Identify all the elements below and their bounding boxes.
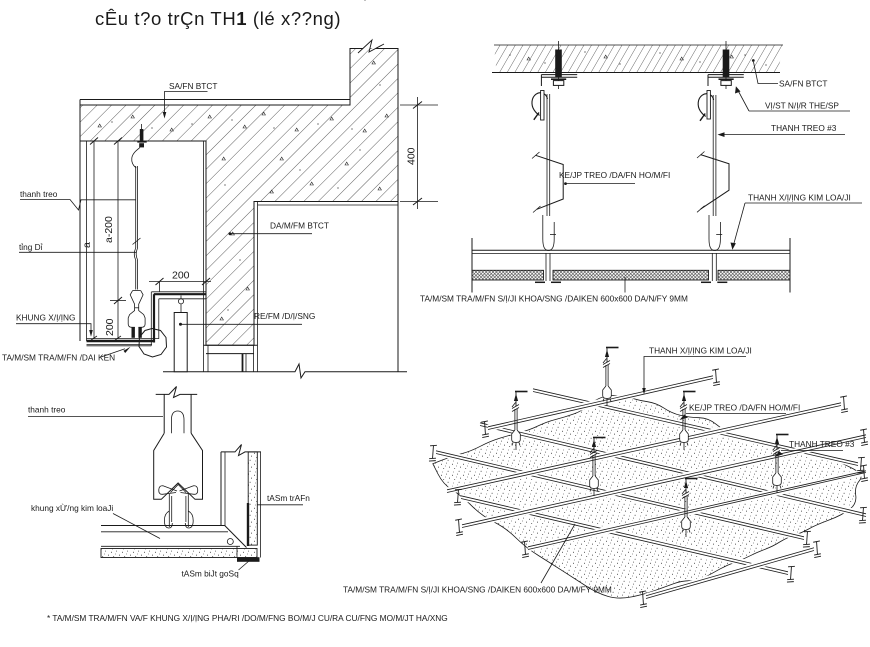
svg-text:cÊu t?o trÇn TH1 (lé x??ng): cÊu t?o trÇn TH1 (lé x??ng) — [95, 8, 341, 29]
svg-text:thanh treo: thanh treo — [28, 405, 66, 415]
svg-text:KE/JP TREO /DA/FN HO/M/FI: KE/JP TREO /DA/FN HO/M/FI — [559, 170, 670, 180]
svg-text:a: a — [81, 242, 93, 248]
svg-text:KHUNG X/Ị/ỊNG: KHUNG X/Ị/ỊNG — [16, 313, 75, 323]
svg-text:THANH TREO #3: THANH TREO #3 — [789, 439, 855, 449]
svg-text:RE/FM /D/Ị/SNG: RE/FM /D/Ị/SNG — [254, 311, 315, 321]
svg-text:VỊ/ST N/Ị/R THE/SP: VỊ/ST N/Ị/R THE/SP — [765, 101, 839, 111]
svg-text:a-200: a-200 — [103, 216, 115, 243]
svg-text:THANH X/Ị/ỊNG KIM LOA/JI: THANH X/Ị/ỊNG KIM LOA/JI — [748, 193, 851, 203]
svg-text:tỉng Dỉ: tỉng Dỉ — [19, 242, 43, 252]
svg-text:tASm trAFn: tASm trAFn — [267, 493, 310, 503]
svg-text:* TA/M/SM TRA/M/FN VA/F KHUNG: * TA/M/SM TRA/M/FN VA/F KHUNG X/Ị/ỊNG PH… — [47, 613, 448, 623]
svg-text:TA/M/SM TRA/M/FN /DAI KEN: TA/M/SM TRA/M/FN /DAI KEN — [2, 353, 115, 363]
svg-text:400: 400 — [406, 147, 418, 165]
svg-text:khung xỪ/ng kim loaJi: khung xỪ/ng kim loaJi — [31, 503, 113, 513]
svg-text:TA/M/SM TRA/M/FN S/Ị/JI KHOA/S: TA/M/SM TRA/M/FN S/Ị/JI KHOA/SNG /DAIKEN… — [420, 294, 688, 304]
svg-text:tASm biJt goSq: tASm biJt goSq — [182, 569, 240, 579]
svg-text:200: 200 — [104, 318, 116, 336]
svg-text:KE/JP TREO /DA/FN HO/M/FI: KE/JP TREO /DA/FN HO/M/FI — [689, 403, 800, 413]
svg-text:200: 200 — [172, 270, 190, 282]
svg-text:THANH X/Ị/ỊNG KIM LOA/JI: THANH X/Ị/ỊNG KIM LOA/JI — [649, 346, 752, 356]
svg-text:THANH TREO #3: THANH TREO #3 — [771, 123, 837, 133]
svg-text:SA/FN BTCT: SA/FN BTCT — [169, 81, 217, 91]
svg-text:DA/M/FM BTCT: DA/M/FM BTCT — [270, 221, 329, 231]
svg-text:TA/M/SM TRA/M/FN S/Ị/JI KHOA/S: TA/M/SM TRA/M/FN S/Ị/JI KHOA/SNG /DAIKEN… — [343, 585, 612, 595]
svg-text:thanh treo: thanh treo — [20, 189, 58, 199]
svg-text:SA/FN BTCT: SA/FN BTCT — [779, 79, 827, 89]
